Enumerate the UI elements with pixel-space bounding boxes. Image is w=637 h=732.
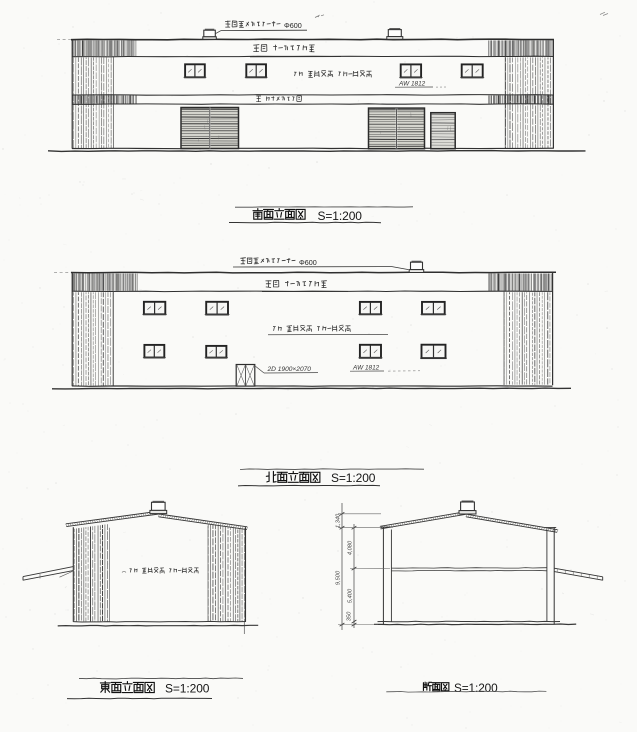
svg-text:4,080: 4,080 — [348, 540, 354, 555]
svg-text:2D 1900×2070: 2D 1900×2070 — [267, 366, 312, 373]
svg-text:Φ600: Φ600 — [284, 21, 302, 30]
svg-text:S=1:200: S=1:200 — [165, 682, 210, 696]
svg-text:5,400: 5,400 — [348, 588, 354, 603]
svg-text:AW 1812: AW 1812 — [352, 365, 380, 372]
svg-text:350: 350 — [347, 611, 353, 621]
svg-text:9,500: 9,500 — [336, 570, 342, 585]
svg-text:S=1:200: S=1:200 — [318, 209, 363, 223]
svg-text:S=1:200: S=1:200 — [454, 681, 498, 695]
svg-text:S=1:200: S=1:200 — [331, 471, 376, 485]
svg-text:AW 1812: AW 1812 — [398, 81, 426, 88]
svg-text:1,340: 1,340 — [336, 513, 342, 528]
svg-text:Φ600: Φ600 — [299, 258, 317, 267]
